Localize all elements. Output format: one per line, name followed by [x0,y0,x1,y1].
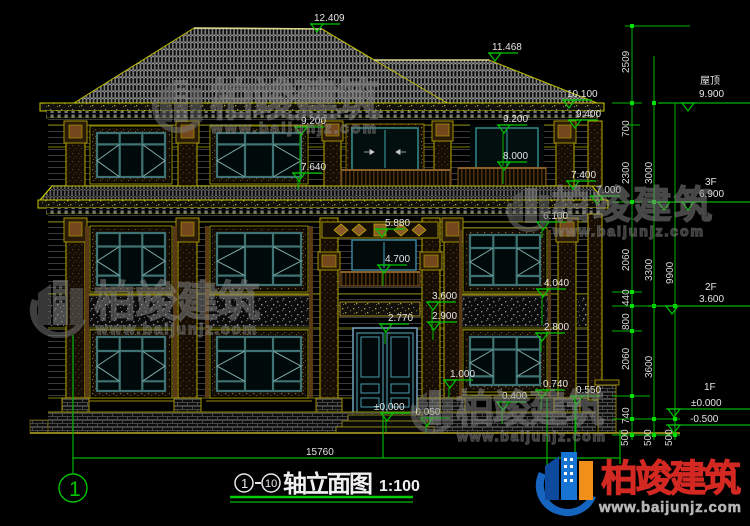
svg-text:柏竣建筑: 柏竣建筑 [210,76,380,125]
svg-text:±0.000: ±0.000 [691,398,722,409]
svg-text:-0.500: -0.500 [690,414,719,425]
svg-text:1:100: 1:100 [379,478,420,495]
svg-text:500: 500 [643,429,654,446]
svg-text:440: 440 [621,289,632,306]
svg-text:柏竣建筑: 柏竣建筑 [94,278,260,325]
svg-text:柏竣建筑: 柏竣建筑 [601,457,741,499]
svg-text:屋顶: 屋顶 [700,75,720,87]
svg-text:15760: 15760 [306,447,334,458]
svg-text:1: 1 [69,478,81,501]
svg-text:9.900: 9.900 [699,89,724,100]
svg-text:7.640: 7.640 [301,162,326,173]
svg-text:4.040: 4.040 [544,278,569,289]
svg-text:12.409: 12.409 [314,13,345,24]
svg-text:10: 10 [265,478,277,490]
svg-text:2.800: 2.800 [544,322,569,333]
svg-text:2509: 2509 [621,50,632,73]
svg-text:740: 740 [621,407,632,424]
svg-text:8.000: 8.000 [503,151,528,162]
svg-text:1.000: 1.000 [450,369,475,380]
svg-text:±0.000: ±0.000 [374,402,405,413]
svg-text:1: 1 [241,476,248,491]
svg-text:3.600: 3.600 [699,294,724,305]
svg-text:2060: 2060 [621,347,632,370]
svg-text:2060: 2060 [621,248,632,271]
svg-text:2.770: 2.770 [388,313,413,324]
svg-text:9.200: 9.200 [503,114,528,125]
svg-text:9.400: 9.400 [576,109,601,120]
svg-text:1F: 1F [704,382,716,393]
svg-text:3300: 3300 [644,258,655,281]
svg-text:轴立面图: 轴立面图 [283,470,373,498]
svg-text:7.400: 7.400 [571,170,596,181]
svg-text:柏竣建筑: 柏竣建筑 [456,389,604,431]
svg-text:4.700: 4.700 [385,254,410,265]
svg-text:9900: 9900 [665,261,676,284]
svg-text:5.880: 5.880 [385,218,410,229]
svg-text:3600: 3600 [644,355,655,378]
svg-text:500: 500 [620,429,631,446]
svg-text:2.900: 2.900 [432,311,457,322]
svg-text:2300: 2300 [621,161,632,184]
svg-text:800: 800 [621,313,632,330]
svg-text:www.baijunjz.com: www.baijunjz.com [598,499,741,516]
svg-text:3.600: 3.600 [432,291,457,302]
svg-text:10.100: 10.100 [567,89,598,100]
svg-text:700: 700 [621,120,632,137]
svg-text:3000: 3000 [644,161,655,184]
svg-text:11.468: 11.468 [492,42,522,53]
svg-text:2F: 2F [705,282,717,293]
